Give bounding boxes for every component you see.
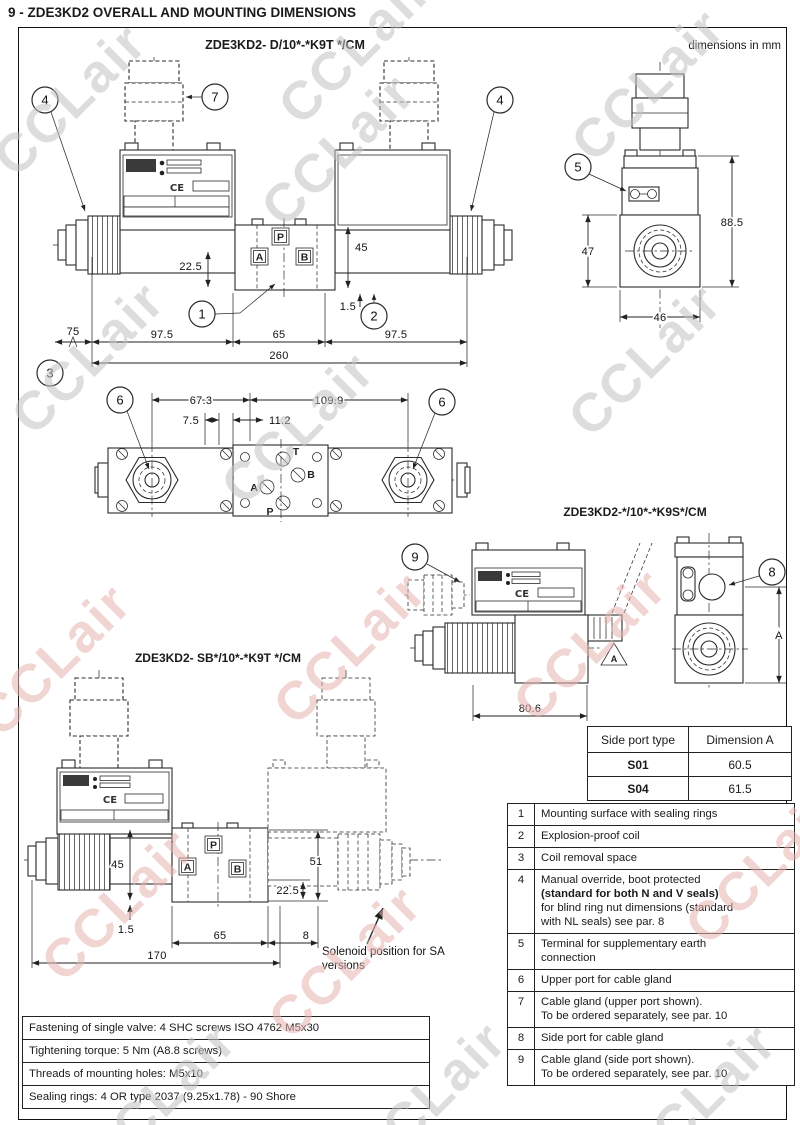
top-view-drawing: T B A P 67.3 109.9 7.5 11.2 6 6: [95, 383, 470, 535]
note-number: 8: [508, 1028, 535, 1050]
valve-body-top: T B A P: [95, 439, 470, 522]
note-number: 1: [508, 804, 535, 826]
side-port-hole: [699, 574, 725, 600]
svg-text:P: P: [277, 232, 284, 244]
note-text: for blind ring nut dimensions (standard: [541, 901, 788, 915]
col-header-dimension-a: Dimension A: [689, 727, 792, 753]
dim-a: A: [745, 587, 786, 683]
svg-text:A: A: [256, 252, 264, 264]
svg-text:80.6: 80.6: [519, 703, 542, 715]
svg-text:B: B: [234, 864, 242, 876]
note-number: 5: [508, 934, 535, 970]
notes-table: 1 Mounting surface with sealing rings 2 …: [507, 803, 795, 1086]
info-text: Fastening of single valve: 4 SHC screws …: [23, 1017, 430, 1040]
svg-text:1.5: 1.5: [340, 301, 356, 313]
svg-text:6: 6: [438, 395, 445, 410]
ce-mark: CE: [170, 183, 184, 194]
note-text: Cable gland (upper port shown).: [541, 995, 788, 1009]
callout-5: 5: [565, 154, 626, 191]
note-number: 4: [508, 870, 535, 934]
svg-text:7.5: 7.5: [183, 415, 199, 427]
note-number: 9: [508, 1050, 535, 1086]
dim-1-5-sb: 1.5: [118, 905, 134, 936]
info-text: Sealing rings: 4 OR type 2037 (9.25x1.78…: [23, 1086, 430, 1109]
note-row: 5 Terminal for supplementary earth conne…: [508, 934, 795, 970]
port-b-symbol-sb: B: [229, 860, 246, 877]
note-text: with NL seals) see par. 8: [541, 915, 788, 929]
page-title: 9 - ZDE3KD2 OVERALL AND MOUNTING DIMENSI…: [8, 5, 356, 20]
svg-text:P: P: [210, 840, 217, 852]
svg-text:47: 47: [582, 246, 595, 258]
table-header-row: Side port type Dimension A: [588, 727, 792, 753]
dim-8-sb: 8: [303, 930, 309, 942]
manual-override-left: [58, 216, 120, 274]
coil-top: [632, 74, 688, 150]
svg-text:67.3: 67.3: [190, 395, 213, 407]
dim-65-sb: 65: [214, 930, 227, 942]
callout-4-right: 4: [471, 87, 513, 211]
ce-mark-k9s: CE: [515, 589, 529, 600]
coil-dashed-right-sb: [317, 670, 375, 768]
manual-override-right: [450, 216, 512, 274]
callout-4-left: 4: [32, 87, 85, 211]
dim-80-6: 80.6: [473, 685, 587, 721]
port-a-symbol-sb: A: [179, 858, 196, 875]
note-text: To be ordered separately, see par. 10: [541, 1067, 788, 1081]
note-text: Mounting surface with sealing rings: [541, 807, 788, 821]
right-coil-dashed: [380, 57, 438, 153]
port-p-label: P: [266, 506, 273, 518]
info-row: Sealing rings: 4 OR type 2037 (9.25x1.78…: [23, 1086, 430, 1109]
sa-note-line1: Solenoid position for SA: [322, 946, 445, 958]
port-p-symbol-sb: P: [205, 836, 222, 853]
units-note: dimensions in mm: [636, 40, 781, 52]
dim-65: 65: [273, 329, 286, 341]
left-coil-dashed: [125, 57, 183, 153]
svg-text:B: B: [301, 252, 309, 264]
side-port-table: Side port type Dimension A S01 60.5 S04 …: [587, 726, 792, 801]
sa-solenoid-dashed: [268, 760, 410, 890]
cell-dimension: 60.5: [689, 753, 792, 777]
coil-warning-triangle: A: [601, 643, 627, 665]
cell-dimension: 61.5: [689, 777, 792, 801]
port-a-label: A: [250, 482, 258, 494]
note-row: 3 Coil removal space: [508, 848, 795, 870]
dim-11-2: 11.2: [233, 413, 291, 445]
dim-97-5-left: 97.5: [151, 329, 174, 341]
info-row: Threads of mounting holes: M5x10: [23, 1063, 430, 1086]
dim-47: 47: [582, 215, 617, 287]
info-row: Tightening torque: 5 Nm (A8.8 screws): [23, 1040, 430, 1063]
front-view-drawing: CE P A B: [25, 55, 520, 390]
svg-text:A: A: [184, 862, 192, 874]
svg-text:45: 45: [111, 859, 124, 871]
sb-view-drawing: CE P A B: [22, 668, 460, 1010]
cell-port-type: S04: [588, 777, 689, 801]
valve-body-side: [620, 150, 700, 287]
note-number: 6: [508, 970, 535, 992]
svg-text:1.5: 1.5: [118, 924, 134, 936]
info-text: Threads of mounting holes: M5x10: [23, 1063, 430, 1086]
svg-text:109.9: 109.9: [314, 395, 343, 407]
svg-text:2: 2: [370, 309, 377, 324]
note-row: 4 Manual override, boot protected (stand…: [508, 870, 795, 934]
callout-3: 3: [37, 360, 63, 386]
port-b-symbol: B: [296, 248, 313, 265]
front-view-label: ZDE3KD2- D/10*-*K9T */CM: [160, 38, 410, 52]
dim-260: 260: [269, 350, 288, 362]
svg-text:4: 4: [41, 93, 48, 108]
dim-75: 75: [67, 326, 80, 338]
dim-88-5: 88.5: [698, 156, 743, 287]
note-text: Coil removal space: [541, 851, 788, 865]
note-text: Cable gland (side port shown).: [541, 1053, 788, 1067]
dim-170-sb: 170: [147, 950, 166, 962]
right-solenoid-block: [335, 143, 450, 230]
svg-text:46: 46: [654, 312, 667, 324]
note-text: Manual override, boot protected: [541, 873, 788, 887]
note-text: Terminal for supplementary earth: [541, 937, 788, 951]
note-row: 8 Side port for cable gland: [508, 1028, 795, 1050]
solenoid-block-k9s: CE: [472, 543, 585, 615]
svg-text:22.5: 22.5: [179, 261, 202, 273]
table-row: S04 61.5: [588, 777, 792, 801]
info-text: Tightening torque: 5 Nm (A8.8 screws): [23, 1040, 430, 1063]
note-number: 3: [508, 848, 535, 870]
note-number: 2: [508, 826, 535, 848]
ce-mark-sb: CE: [103, 795, 117, 806]
port-p-symbol: P: [272, 228, 289, 245]
note-row: 1 Mounting surface with sealing rings: [508, 804, 795, 826]
note-row: 6 Upper port for cable gland: [508, 970, 795, 992]
callout-7: 7: [186, 84, 228, 110]
sb-view-label: ZDE3KD2- SB*/10*-*K9T */CM: [113, 651, 323, 665]
port-b-label: B: [307, 469, 315, 481]
valve-center-body: P A B: [235, 218, 335, 297]
svg-text:3: 3: [46, 366, 53, 381]
valve-body-sb: P A B: [172, 822, 268, 908]
svg-text:A: A: [611, 654, 618, 664]
note-row: 9 Cable gland (side port shown). To be o…: [508, 1050, 795, 1086]
port-a-symbol: A: [251, 248, 268, 265]
callout-2: 2: [361, 294, 387, 329]
end-view-k9s: [672, 533, 748, 690]
note-text: Side port for cable gland: [541, 1031, 788, 1045]
left-solenoid-block: CE: [120, 143, 235, 230]
dim-1-5: 1.5: [340, 294, 360, 313]
port-t-label: T: [293, 446, 300, 458]
svg-text:8: 8: [768, 565, 775, 580]
note-row: 7 Cable gland (upper port shown). To be …: [508, 992, 795, 1028]
override-k9s: [415, 623, 515, 673]
note-row: 2 Explosion-proof coil: [508, 826, 795, 848]
dim-109-9: 109.9: [250, 395, 408, 407]
fastening-info-table: Fastening of single valve: 4 SHC screws …: [22, 1016, 430, 1109]
svg-text:9: 9: [411, 550, 418, 565]
svg-text:4: 4: [496, 93, 503, 108]
sa-note: Solenoid position for SA versions: [322, 908, 445, 972]
cell-port-type: S01: [588, 753, 689, 777]
table-row: S01 60.5: [588, 753, 792, 777]
svg-text:7: 7: [211, 90, 218, 105]
svg-text:88.5: 88.5: [721, 217, 744, 229]
svg-text:45: 45: [355, 242, 368, 254]
dim-97-5-right: 97.5: [385, 329, 408, 341]
note-text: connection: [541, 951, 788, 965]
svg-text:A: A: [775, 630, 783, 642]
svg-text:5: 5: [574, 160, 581, 175]
solenoid-block-sb: CE: [57, 760, 172, 834]
valve-body-k9s: [515, 615, 588, 683]
datasheet-page: { "page": { "title": "9 - ZDE3KD2 OVERAL…: [0, 0, 800, 1125]
svg-text:1: 1: [198, 307, 205, 322]
side-view-drawing: 5 88.5 47 46: [555, 60, 790, 345]
note-text: Explosion-proof coil: [541, 829, 788, 843]
cable-gland-dashed: [408, 575, 464, 615]
coil-side-k9s: [588, 543, 652, 641]
note-number: 7: [508, 992, 535, 1028]
svg-text:51: 51: [310, 856, 323, 868]
svg-text:11.2: 11.2: [269, 415, 291, 427]
sa-note-line2: versions: [322, 960, 365, 972]
dim-7-5: 7.5: [183, 413, 219, 445]
mounting-surface-block: T B A P: [233, 439, 328, 522]
note-text: To be ordered separately, see par. 10: [541, 1009, 788, 1023]
note-text-bold: (standard for both N and V seals): [541, 887, 788, 901]
solenoid-tube-sb: [28, 832, 172, 890]
svg-text:22.5: 22.5: [276, 885, 299, 897]
coil-dashed-left-sb: [70, 670, 128, 768]
note-text: Upper port for cable gland: [541, 973, 788, 987]
info-row: Fastening of single valve: 4 SHC screws …: [23, 1017, 430, 1040]
k9s-view-label: ZDE3KD2-*/10*-*K9S*/CM: [545, 505, 725, 519]
svg-text:6: 6: [116, 393, 123, 408]
col-header-side-port-type: Side port type: [588, 727, 689, 753]
